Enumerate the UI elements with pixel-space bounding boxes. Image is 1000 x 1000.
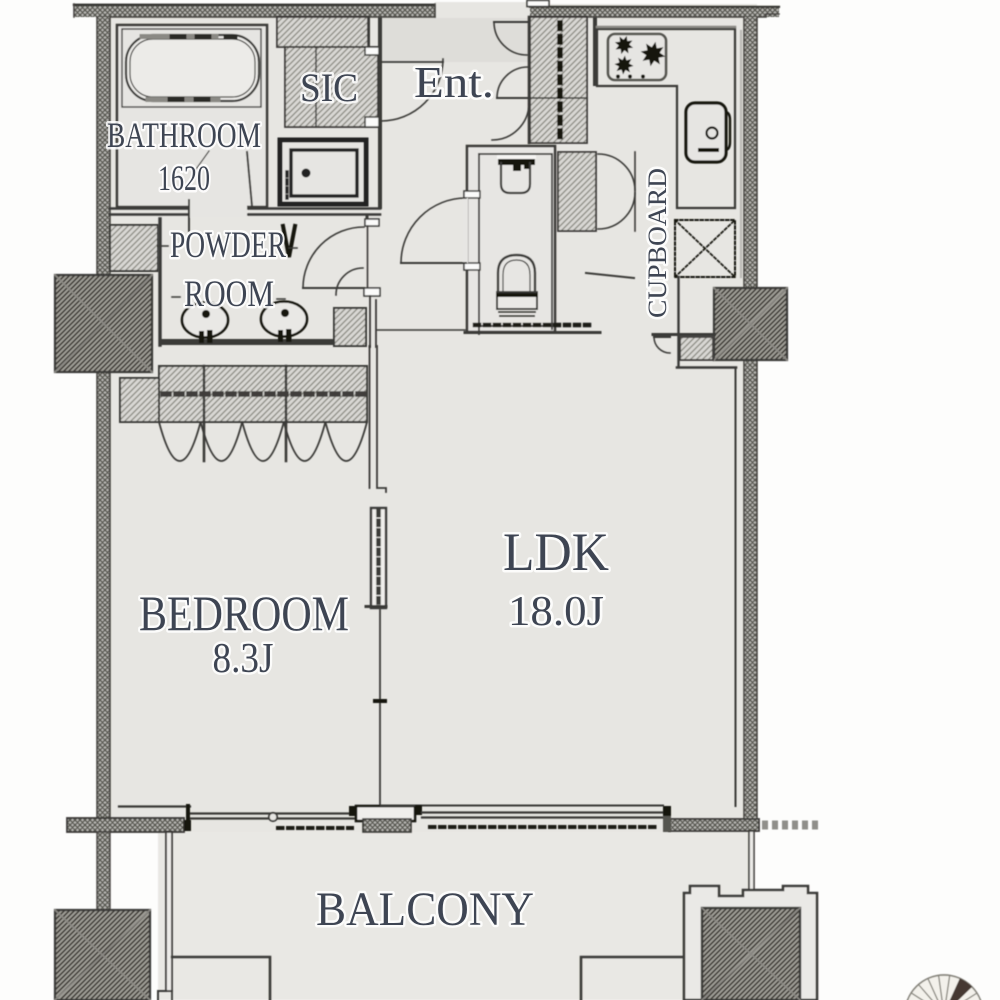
- svg-text:POWDER: POWDER: [170, 225, 286, 266]
- svg-text:CUPBOARD: CUPBOARD: [643, 168, 672, 318]
- svg-text:LDK: LDK: [503, 522, 609, 582]
- svg-text:SIC: SIC: [300, 65, 358, 110]
- svg-text:Ent.: Ent.: [414, 58, 494, 107]
- svg-text:BATHROOM: BATHROOM: [107, 115, 261, 155]
- svg-text:BALCONY: BALCONY: [316, 883, 534, 936]
- svg-text:ROOM: ROOM: [184, 274, 274, 315]
- svg-text:1620: 1620: [158, 158, 210, 198]
- svg-text:BEDROOM: BEDROOM: [139, 585, 349, 641]
- svg-text:8.3J: 8.3J: [213, 636, 274, 682]
- svg-text:18.0J: 18.0J: [508, 589, 604, 635]
